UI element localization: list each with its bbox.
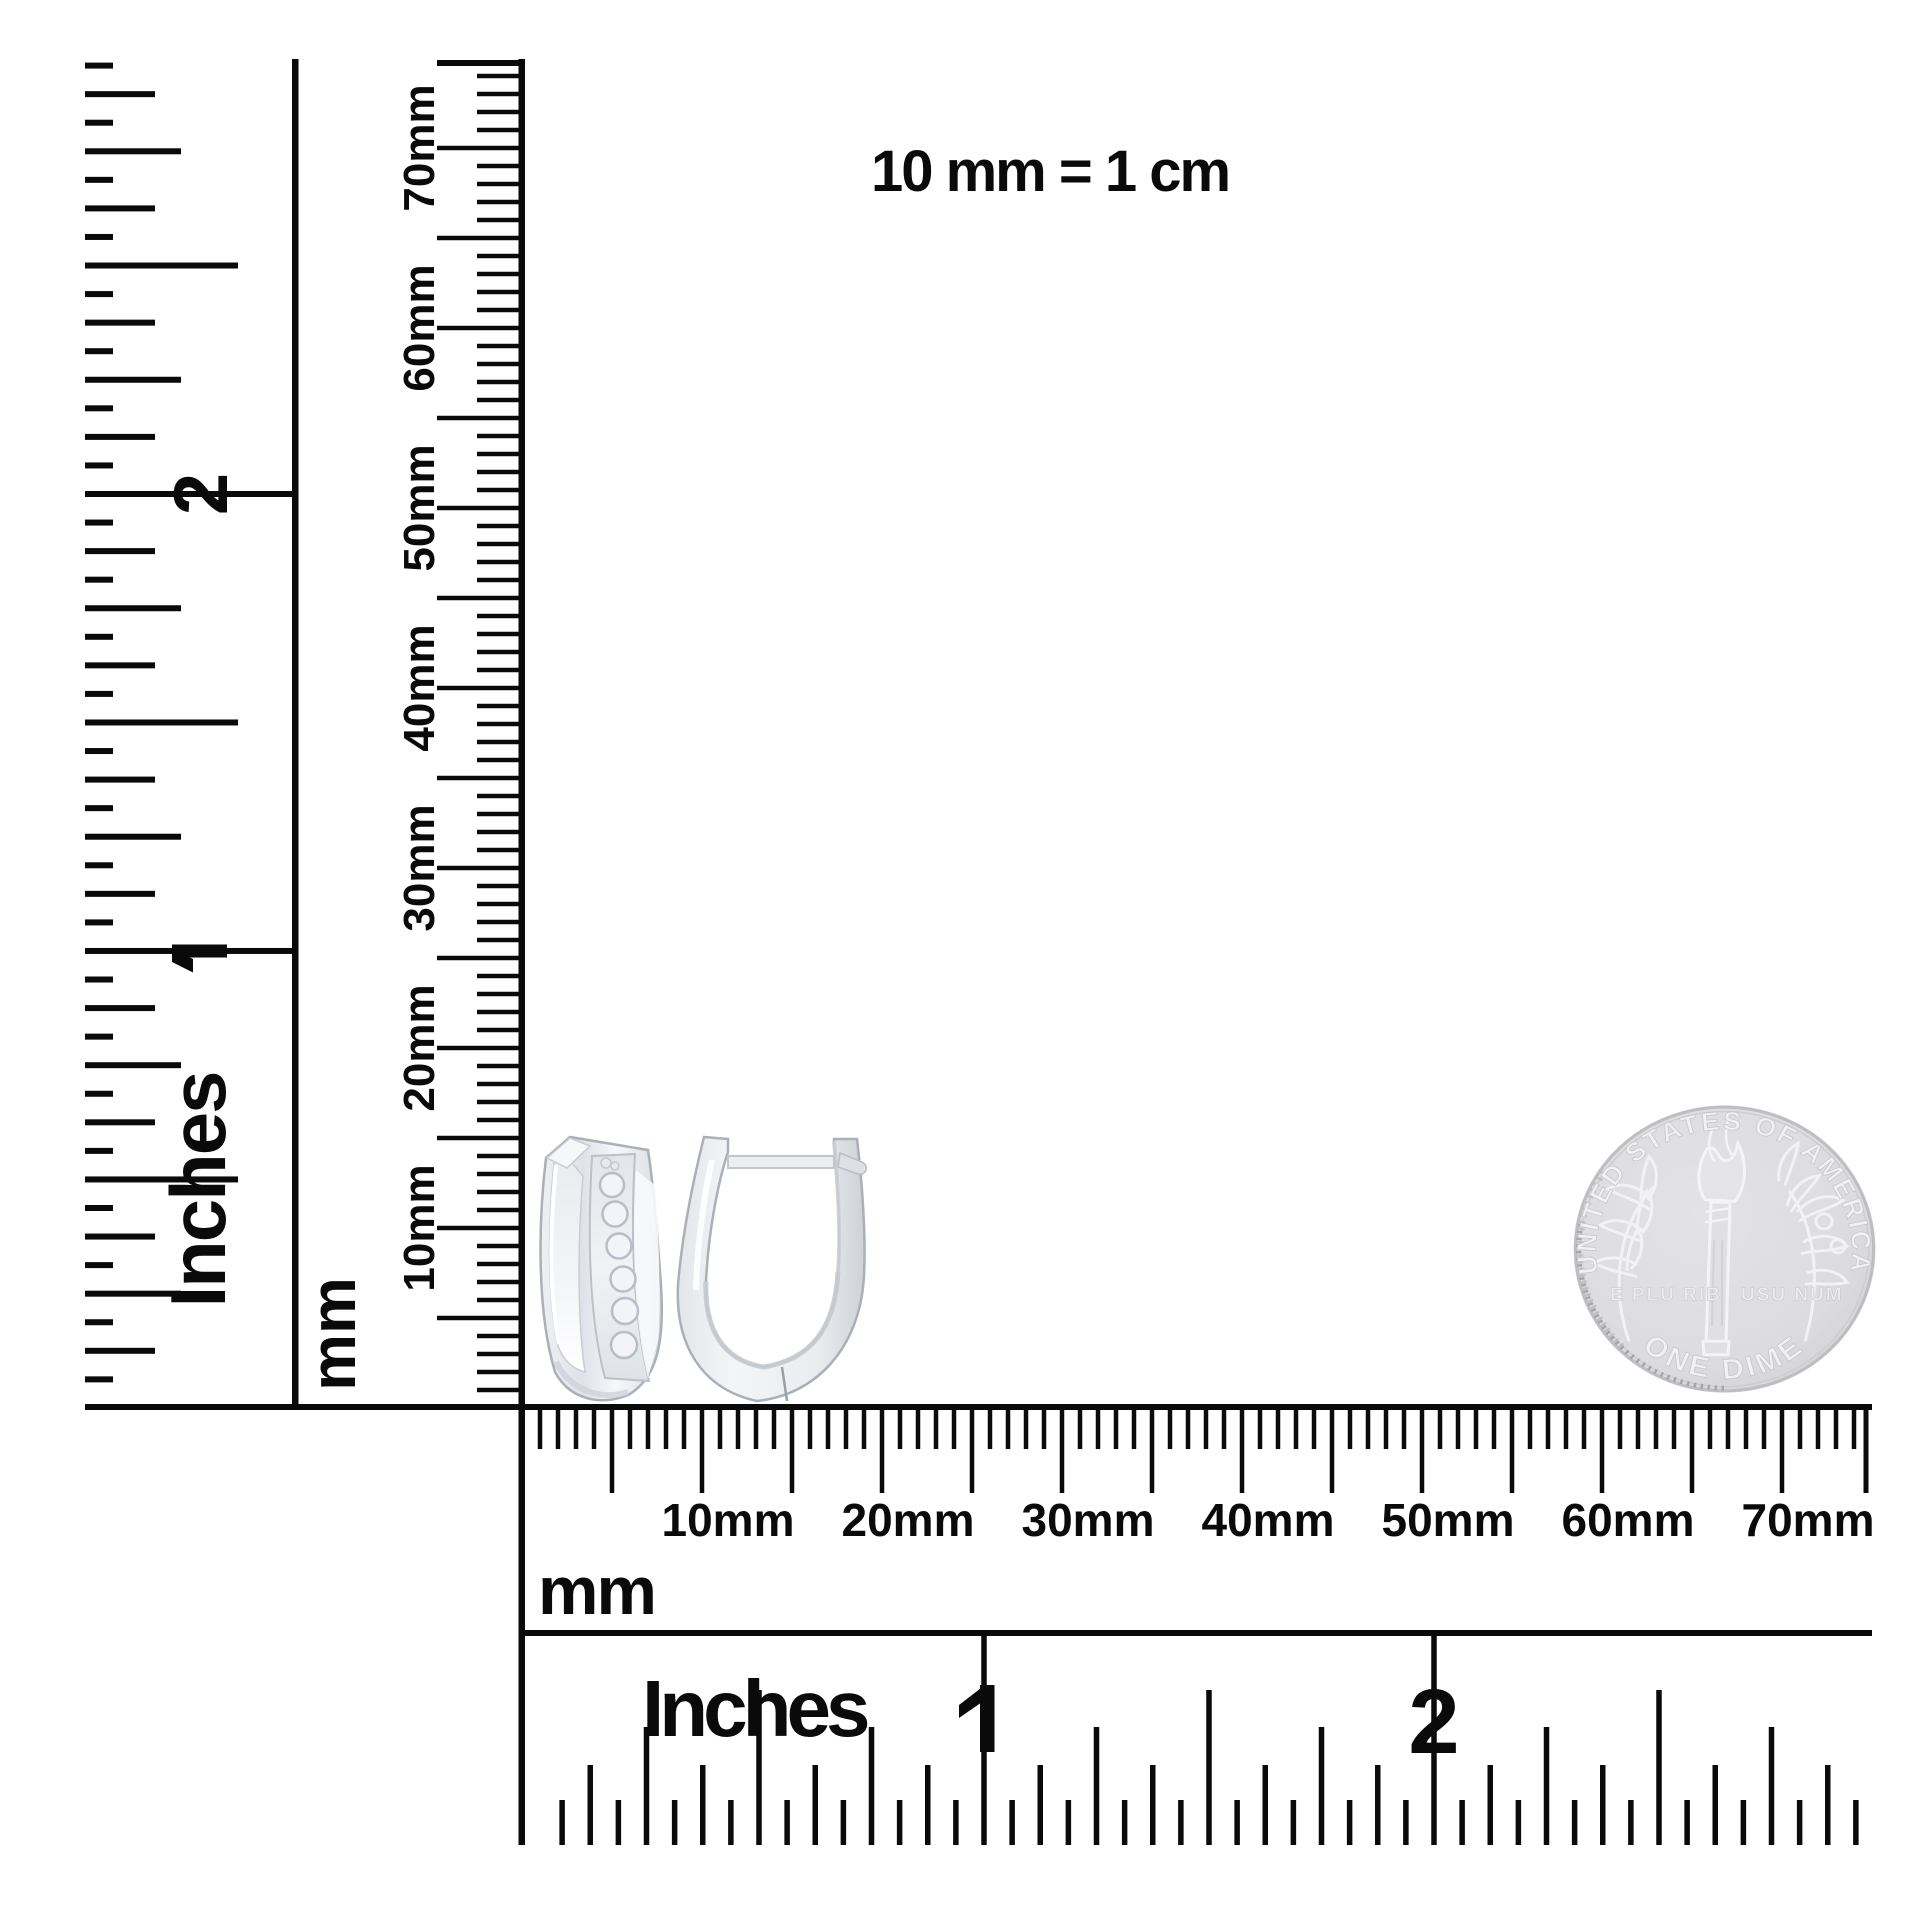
- svg-text:10mm: 10mm: [395, 1164, 444, 1291]
- svg-text:70mm: 70mm: [395, 84, 444, 211]
- svg-text:40mm: 40mm: [1202, 1494, 1335, 1546]
- svg-text:2: 2: [159, 473, 244, 515]
- svg-text:40mm: 40mm: [395, 624, 444, 751]
- svg-text:E PLU RIB: E PLU RIB: [1610, 1284, 1722, 1304]
- svg-text:Inches: Inches: [154, 1072, 242, 1307]
- svg-text:30mm: 30mm: [1022, 1494, 1155, 1546]
- svg-text:mm: mm: [538, 1553, 655, 1629]
- svg-text:20mm: 20mm: [395, 984, 444, 1111]
- svg-text:60mm: 60mm: [1562, 1494, 1695, 1546]
- svg-text:50mm: 50mm: [1382, 1494, 1515, 1546]
- svg-text:30mm: 30mm: [395, 804, 444, 931]
- svg-text:60mm: 60mm: [395, 264, 444, 391]
- svg-text:50mm: 50mm: [395, 444, 444, 571]
- svg-text:2: 2: [1408, 1671, 1459, 1773]
- svg-text:Inches: Inches: [642, 1664, 868, 1753]
- svg-text:10 mm = 1 cm: 10 mm = 1 cm: [871, 139, 1229, 204]
- svg-text:USU NUM: USU NUM: [1741, 1284, 1844, 1304]
- svg-text:mm: mm: [297, 1277, 369, 1391]
- svg-text:10mm: 10mm: [662, 1494, 795, 1546]
- svg-text:20mm: 20mm: [842, 1494, 975, 1546]
- svg-text:70mm: 70mm: [1742, 1494, 1875, 1546]
